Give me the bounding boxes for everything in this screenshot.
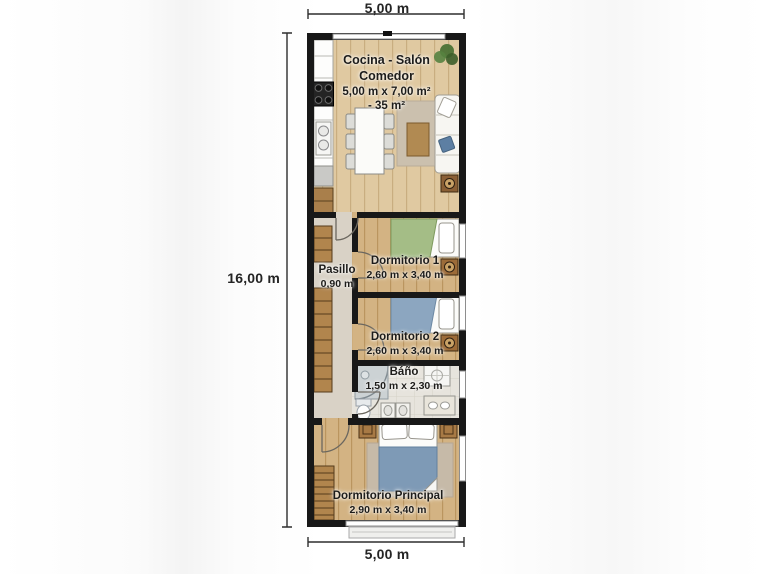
bed2-pillow xyxy=(439,299,454,329)
pillow xyxy=(409,423,435,439)
dining-set xyxy=(346,108,394,174)
master-wardrobe xyxy=(314,466,334,520)
vent xyxy=(383,31,392,36)
chair xyxy=(384,134,394,149)
chair xyxy=(384,114,394,129)
dining-table xyxy=(355,108,384,174)
top-dimension-label: 5,00 m xyxy=(307,0,467,16)
bed1-blanket xyxy=(391,219,437,257)
toilet xyxy=(357,405,370,420)
left-dimension-label: 16,00 m xyxy=(195,270,280,286)
dishwasher xyxy=(314,166,333,186)
bed1-pillow xyxy=(439,223,454,253)
bed2-blanket xyxy=(391,295,437,333)
kitchen-counter xyxy=(312,40,334,214)
pillow xyxy=(382,423,408,439)
bottom-dimension-label: 5,00 m xyxy=(307,546,467,562)
bottom-window xyxy=(346,521,458,526)
master-window xyxy=(460,436,466,481)
master-blanket xyxy=(379,447,437,491)
coffee-table xyxy=(407,123,429,156)
bathroom-window xyxy=(460,371,466,398)
chair xyxy=(384,154,394,169)
bedroom2-window xyxy=(460,296,466,330)
floor-plan-page: 5,00 m 16,00 m 5,00 m Cocina - Salón Com… xyxy=(0,0,766,574)
left-dimension-line xyxy=(282,33,292,527)
floor-plan-graphic xyxy=(0,0,766,574)
hallway-cabinets xyxy=(314,226,332,392)
bedroom1-window xyxy=(460,224,466,258)
